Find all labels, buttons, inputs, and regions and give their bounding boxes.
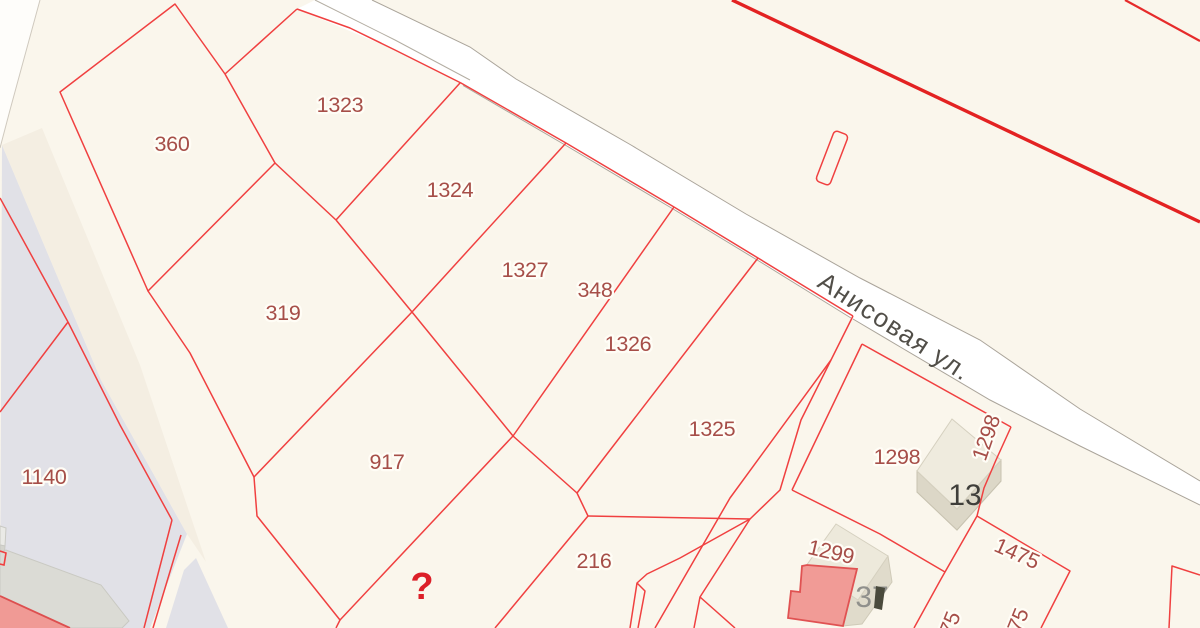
svg-text:1327: 1327 — [502, 258, 549, 282]
svg-text:216: 216 — [577, 549, 612, 573]
svg-text:917: 917 — [370, 450, 405, 474]
svg-text:?: ? — [410, 566, 433, 608]
svg-text:1323: 1323 — [317, 93, 364, 117]
svg-text:1140: 1140 — [21, 465, 66, 489]
svg-text:13: 13 — [948, 479, 981, 512]
svg-text:348: 348 — [578, 278, 613, 302]
svg-text:1298: 1298 — [874, 445, 921, 469]
svg-text:319: 319 — [266, 301, 301, 325]
svg-text:1325: 1325 — [689, 417, 736, 441]
svg-text:1326: 1326 — [605, 332, 652, 356]
svg-text:360: 360 — [155, 132, 190, 156]
svg-text:1324: 1324 — [427, 178, 474, 202]
